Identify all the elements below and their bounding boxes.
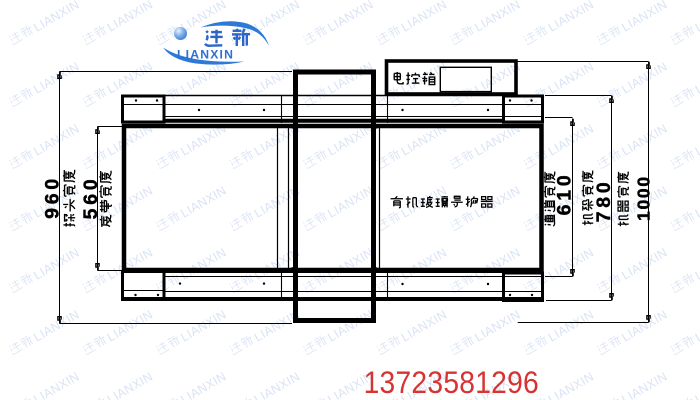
- svg-text:1000: 1000: [634, 175, 654, 221]
- svg-text:13723581296: 13723581296: [364, 366, 539, 400]
- svg-text:780: 780: [593, 178, 615, 222]
- svg-text:610: 610: [554, 171, 576, 215]
- svg-text:960: 960: [42, 175, 64, 219]
- svg-text:560: 560: [80, 175, 102, 219]
- svg-text:LIANXIN: LIANXIN: [177, 48, 234, 62]
